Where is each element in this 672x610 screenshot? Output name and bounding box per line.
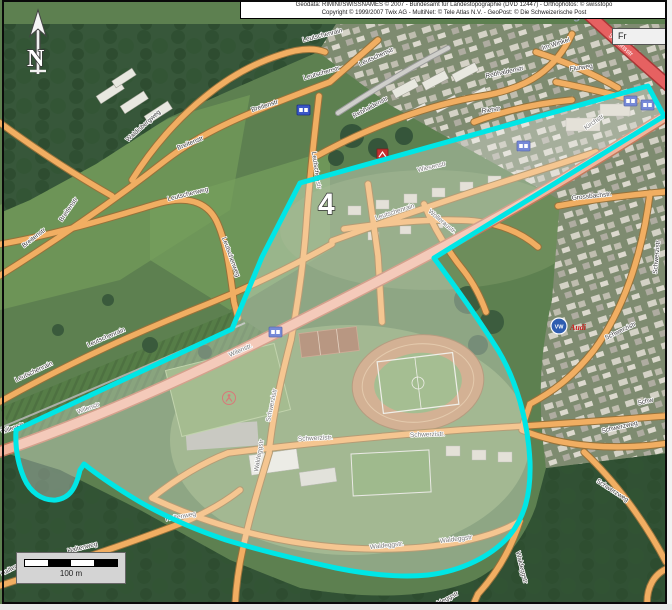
map-window: BreitenstrBreitenstrBreitenstrBreitenstr… (0, 0, 672, 610)
vw-label: VW (555, 325, 565, 331)
scale-bar-segments (24, 559, 118, 567)
north-label: N (27, 46, 45, 72)
attribution-line2: Copyright © 1999/2007 Twix AG - MultiNet… (241, 9, 667, 17)
bottom-edge-strip (0, 604, 672, 610)
attribution-box: Geodata: RIMINI/SWISSNAMES © 2007 - Bund… (240, 0, 668, 19)
attribution-line1: Geodata: RIMINI/SWISSNAMES © 2007 - Bund… (241, 1, 667, 9)
route-shield-icon (297, 105, 310, 115)
scale-label: 100 m (24, 569, 118, 578)
partial-button-fr[interactable]: Fr (612, 28, 672, 45)
scale-bar: 100 m (16, 552, 126, 584)
right-edge-strip (667, 0, 672, 610)
area-number-label: 4 (318, 188, 335, 221)
map-canvas[interactable]: BreitenstrBreitenstrBreitenstrBreitenstr… (0, 0, 672, 610)
audi-label: Audi (569, 323, 587, 332)
vw-logo: VW (551, 318, 567, 334)
